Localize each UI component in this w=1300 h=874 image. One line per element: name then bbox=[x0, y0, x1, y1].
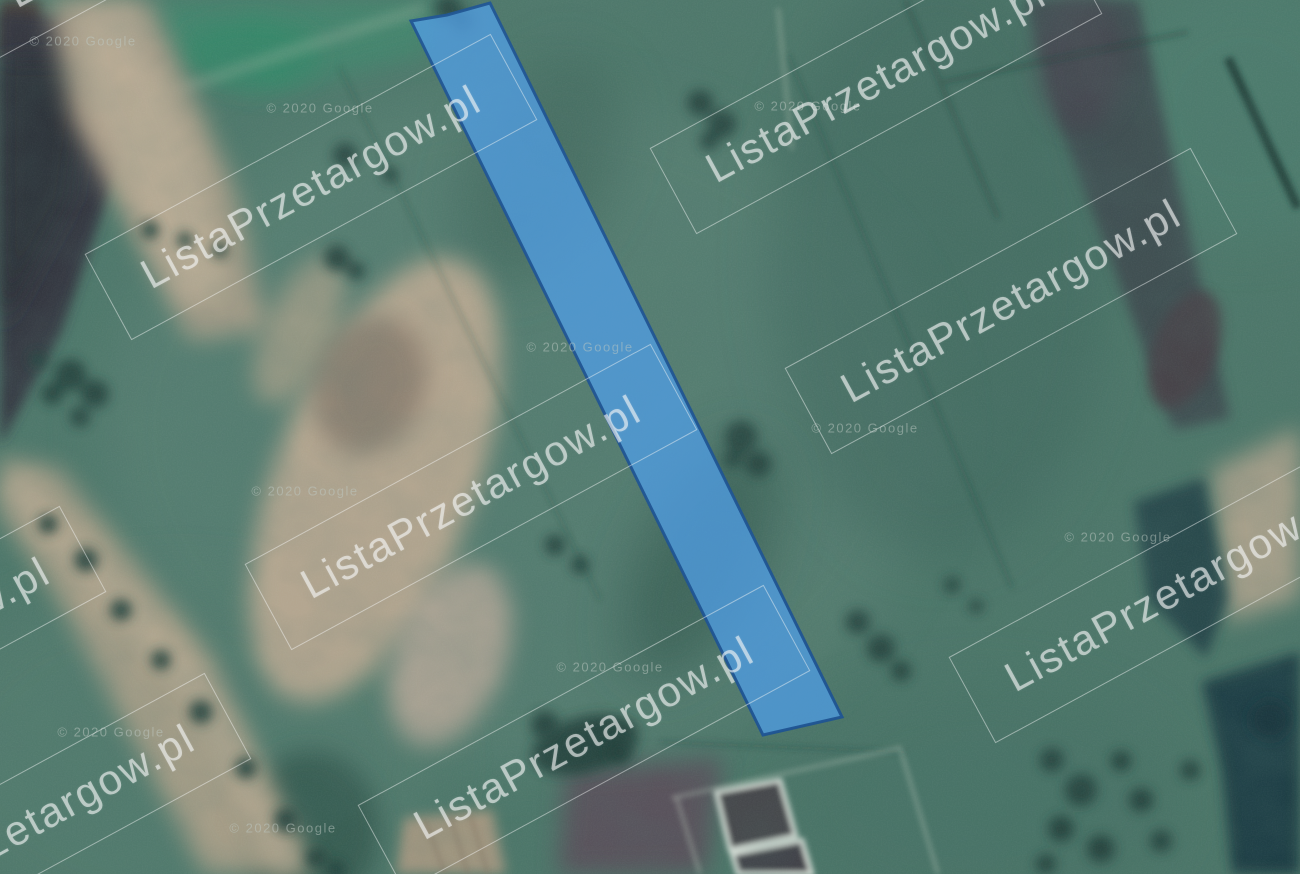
watermark-text: ListaPrzetargow.pl bbox=[949, 437, 1300, 744]
watermark-text: ListaPrzetargow.pl bbox=[85, 34, 538, 341]
watermark-text: ListaPrzetargow.pl bbox=[0, 506, 106, 813]
watermark-text: ListaPrzetargow.pl bbox=[245, 344, 698, 651]
watermark-text: ListaPrzetargow.pl bbox=[0, 673, 251, 874]
watermark-text: ListaPrzetargow.pl bbox=[358, 585, 811, 874]
watermark-layer: ListaPrzetargow.plListaPrzetargow.plList… bbox=[0, 0, 1300, 874]
satellite-map[interactable]: © 2020 Google© 2020 Google© 2020 Google©… bbox=[0, 0, 1300, 874]
watermark-text: ListaPrzetargow.pl bbox=[0, 0, 403, 59]
watermark-text: ListaPrzetargow.pl bbox=[650, 0, 1103, 234]
watermark-text: ListaPrzetargow.pl bbox=[785, 148, 1238, 455]
